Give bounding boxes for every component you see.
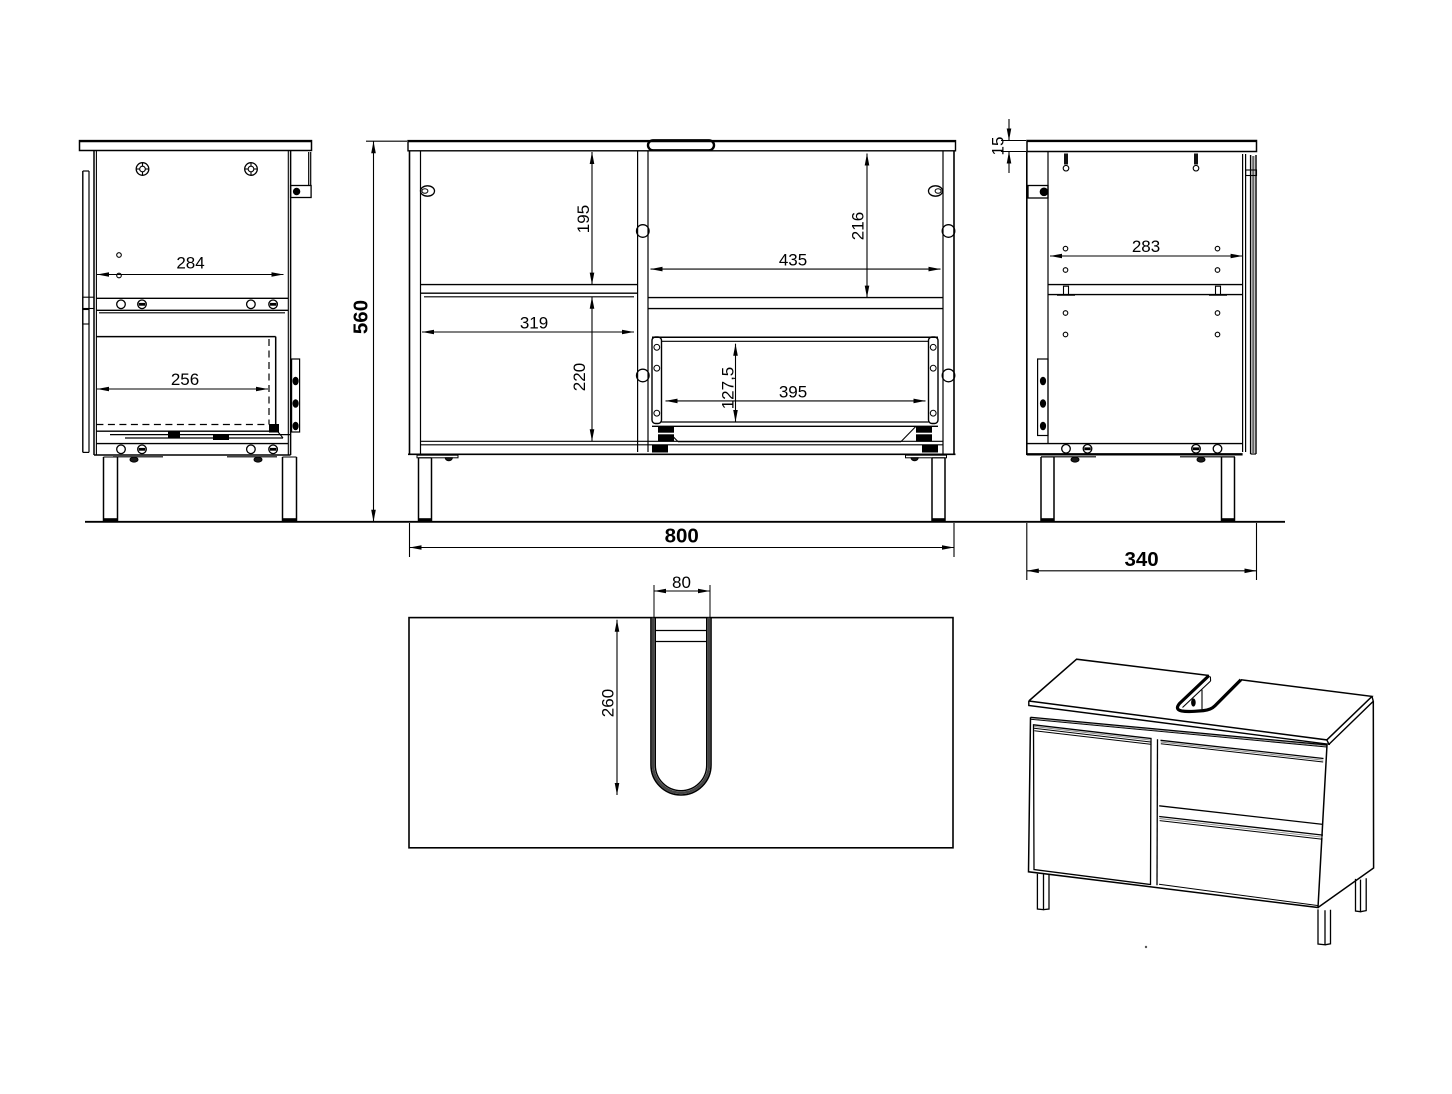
- svg-text:260: 260: [599, 689, 618, 717]
- svg-text:256: 256: [171, 370, 199, 389]
- svg-text:15: 15: [989, 137, 1008, 156]
- svg-text:284: 284: [176, 254, 204, 273]
- svg-text:80: 80: [672, 573, 691, 592]
- svg-text:435: 435: [779, 251, 807, 270]
- svg-text:283: 283: [1132, 237, 1160, 256]
- svg-text:195: 195: [574, 205, 593, 233]
- svg-text:216: 216: [849, 212, 868, 240]
- svg-text:340: 340: [1124, 548, 1158, 571]
- svg-text:220: 220: [570, 363, 589, 391]
- svg-text:560: 560: [350, 300, 373, 334]
- svg-text:319: 319: [520, 314, 548, 333]
- svg-text:395: 395: [779, 383, 807, 402]
- svg-text:127,5: 127,5: [719, 367, 738, 410]
- svg-text:800: 800: [665, 525, 699, 548]
